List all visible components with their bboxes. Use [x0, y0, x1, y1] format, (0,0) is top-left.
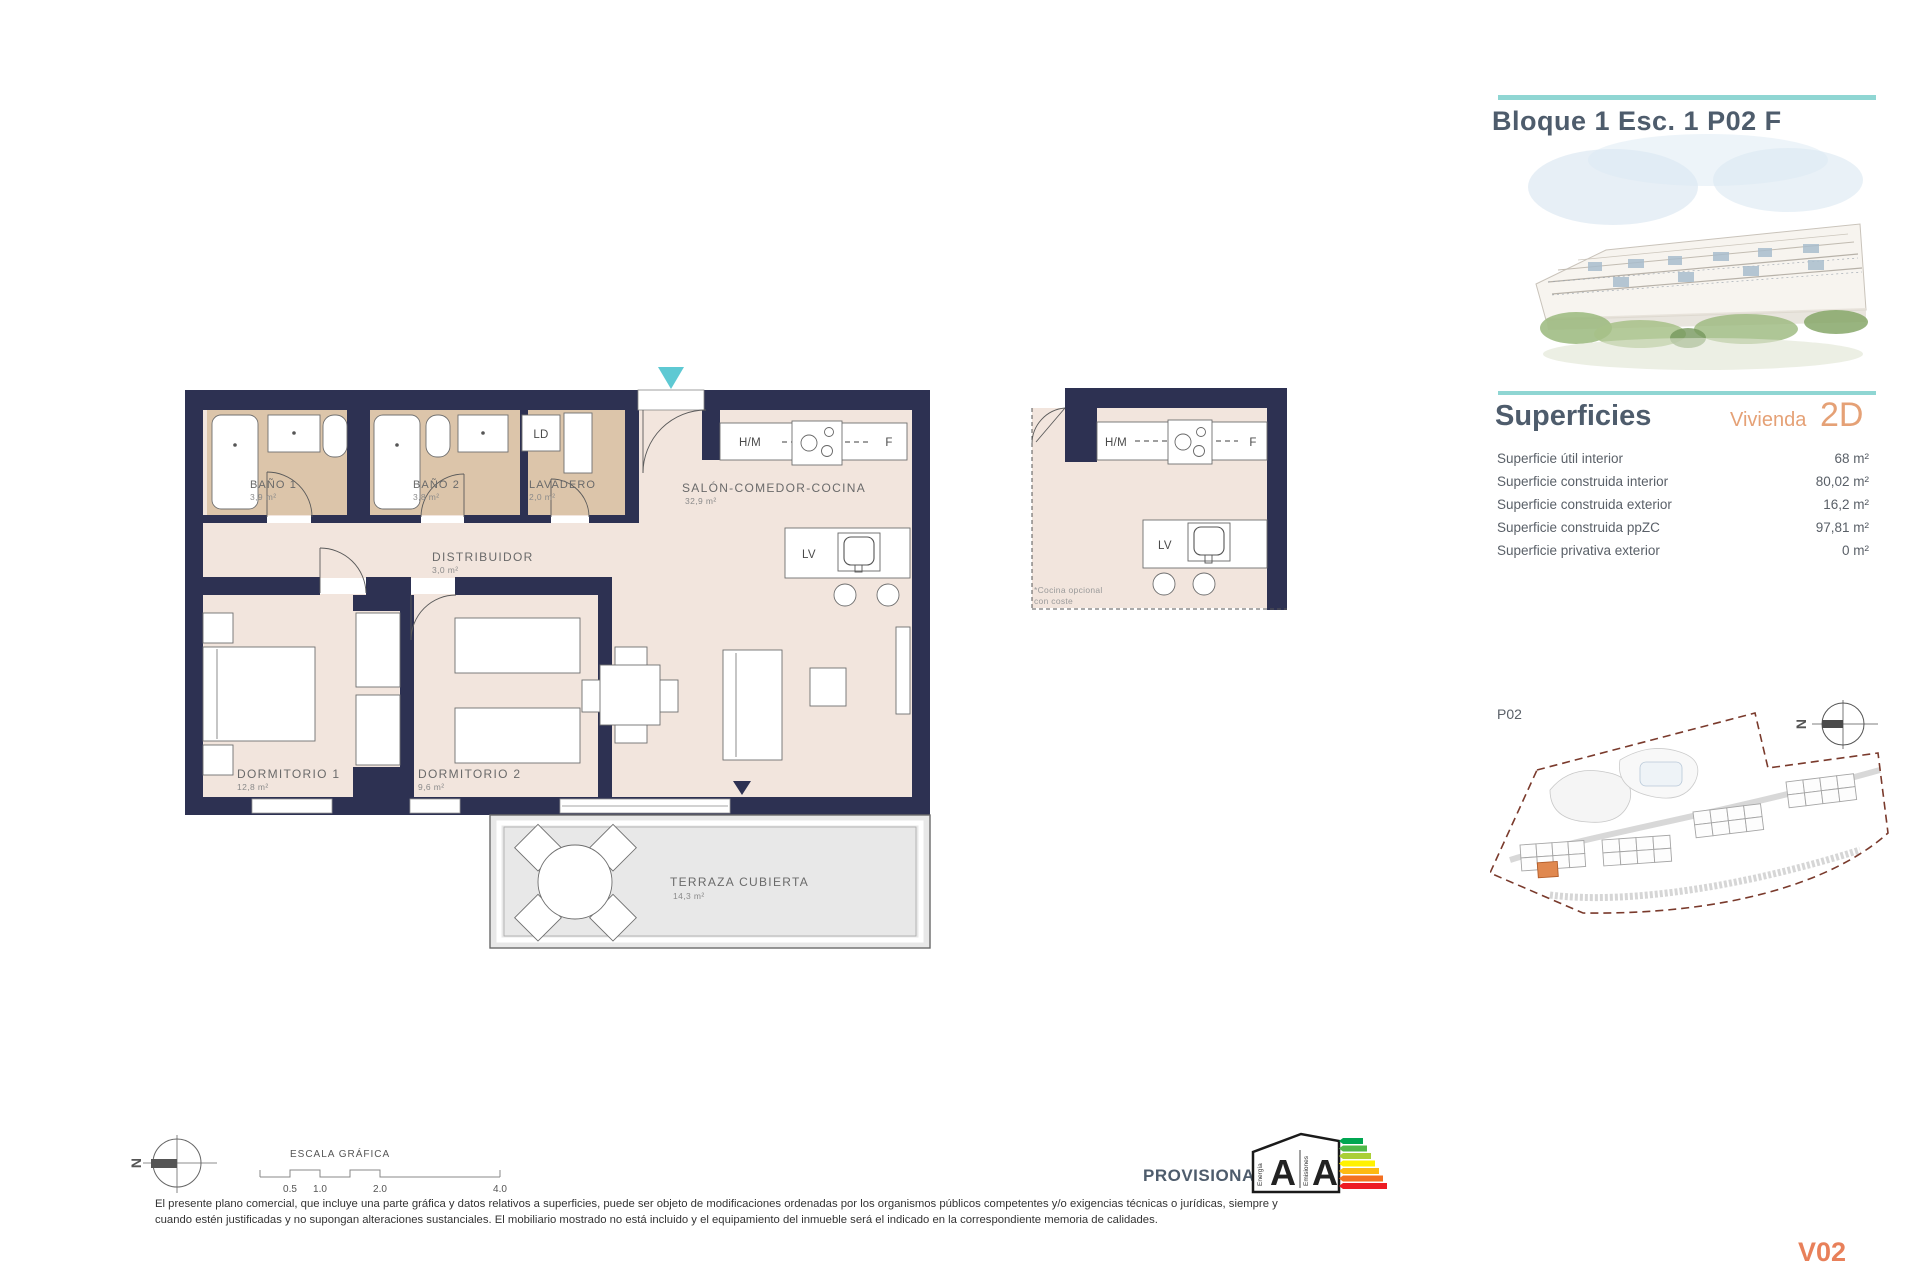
- building-cluster: [1520, 841, 1586, 879]
- superficies-row: Superficie privativa exterior 0 m²: [1497, 539, 1869, 562]
- bed-icon: [203, 647, 315, 741]
- svg-text:A: A: [1312, 1152, 1338, 1193]
- room-label: TERRAZA CUBIERTA: [670, 875, 809, 889]
- hm-label: H/M: [739, 437, 761, 449]
- surface-label: Superficie privativa exterior: [1497, 543, 1660, 558]
- building-illustration: [1518, 132, 1886, 382]
- svg-text:3,0 m²: 3,0 m²: [432, 565, 459, 575]
- entrance-arrow-icon: [658, 367, 684, 389]
- vivienda-type-code: 2D: [1820, 396, 1863, 435]
- chair-icon: [658, 680, 678, 712]
- svg-text:F: F: [1249, 437, 1256, 449]
- svg-text:2,0 m²: 2,0 m²: [529, 492, 556, 502]
- stool-icon: [1153, 573, 1175, 595]
- entrance-door: [638, 390, 704, 410]
- svg-text:LV: LV: [1158, 540, 1172, 552]
- kitchen-note: *Cocina opcional: [1034, 585, 1103, 595]
- nightstand-icon: [203, 745, 233, 775]
- svg-text:N: N: [1793, 719, 1809, 729]
- surface-value: 68 m²: [1834, 451, 1869, 466]
- wardrobe-icon: [356, 613, 400, 687]
- svg-text:Emisiones: Emisiones: [1303, 1155, 1310, 1186]
- alt-kitchen-plan: H/M F LV *Cocina opcional con coste: [1020, 380, 1310, 625]
- chair-icon: [615, 647, 647, 667]
- wardrobe-icon: [356, 695, 400, 765]
- room-label: BAÑO 2: [413, 478, 460, 491]
- dining-table-icon: [600, 665, 660, 725]
- surface-value: 80,02 m²: [1816, 474, 1869, 489]
- building-cluster: [1786, 774, 1857, 808]
- building-cluster: [1693, 804, 1764, 838]
- sofa-icon: [723, 650, 782, 760]
- appliance-icon: [564, 413, 592, 473]
- disclaimer-line: El presente plano comercial, que incluye…: [155, 1196, 1435, 1212]
- svg-text:N: N: [128, 1158, 144, 1168]
- room-label: BAÑO 1: [250, 478, 297, 491]
- version-label: V02: [1798, 1237, 1846, 1268]
- svg-text:32,9 m²: 32,9 m²: [685, 496, 717, 506]
- bed-icon: [455, 618, 580, 673]
- bed-icon: [455, 708, 580, 763]
- toilet-icon: [323, 415, 347, 457]
- highlighted-unit: [1537, 861, 1558, 877]
- svg-text:A: A: [1270, 1152, 1296, 1193]
- stool-icon: [834, 584, 856, 606]
- side-table-icon: [810, 668, 846, 706]
- svg-text:9,6 m²: 9,6 m²: [418, 782, 445, 792]
- room-label: DORMITORIO 2: [418, 767, 521, 781]
- building-cluster: [1602, 835, 1672, 866]
- surface-value: 16,2 m²: [1823, 497, 1869, 512]
- vivienda-label: Vivienda: [1730, 409, 1806, 432]
- svg-text:2.0: 2.0: [373, 1184, 387, 1195]
- energy-scale-bars: [1339, 1138, 1387, 1189]
- svg-text:4.0: 4.0: [493, 1184, 507, 1195]
- chair-icon: [582, 680, 602, 712]
- svg-text:1.0: 1.0: [313, 1184, 327, 1195]
- scale-title: ESCALA GRÁFICA: [290, 1147, 390, 1160]
- superficies-table: Superficie útil interior 68 m² Superfici…: [1497, 447, 1869, 562]
- title-rule: [1498, 95, 1876, 100]
- surface-label: Superficie construida exterior: [1497, 497, 1672, 512]
- room-label: DISTRIBUIDOR: [432, 550, 534, 564]
- nightstand-icon: [203, 613, 233, 643]
- superficies-row: Superficie construida exterior 16,2 m²: [1497, 493, 1869, 516]
- ld-label: LD: [533, 429, 548, 441]
- fridge-label: F: [885, 437, 892, 449]
- site-boundary: [1490, 713, 1888, 913]
- sink-icon: [1194, 527, 1224, 555]
- svg-text:3,9 m²: 3,9 m²: [250, 492, 277, 502]
- energy-rating-icon: Energía A Emisiones A: [1245, 1128, 1395, 1198]
- main-floor-plan: LD H/M F LV: [170, 355, 960, 970]
- svg-text:H/M: H/M: [1105, 437, 1127, 449]
- surface-label: Superficie construida interior: [1497, 474, 1668, 489]
- svg-text:12,8 m²: 12,8 m²: [237, 782, 269, 792]
- svg-text:14,3 m²: 14,3 m²: [673, 891, 705, 901]
- stool-icon: [877, 584, 899, 606]
- chair-icon: [615, 723, 647, 743]
- scale-bar: ESCALA GRÁFICA 0.5 1.0 2.0 4.0: [250, 1143, 530, 1203]
- site-plan: N: [1490, 700, 1920, 940]
- surface-value: 97,81 m²: [1816, 520, 1869, 535]
- superficies-row: Superficie construida interior 80,02 m²: [1497, 470, 1869, 493]
- superficies-rule: [1498, 391, 1876, 395]
- room-label: DORMITORIO 1: [237, 767, 340, 781]
- svg-text:3,8 m²: 3,8 m²: [413, 492, 440, 502]
- superficies-row: Superficie construida ppZC 97,81 m²: [1497, 516, 1869, 539]
- plan-sheet: LD H/M F LV: [0, 0, 1920, 1280]
- superficies-row: Superficie útil interior 68 m²: [1497, 447, 1869, 470]
- room-label: SALÓN-COMEDOR-COCINA: [682, 480, 866, 495]
- svg-text:Energía: Energía: [1257, 1163, 1264, 1186]
- tv-unit-icon: [896, 627, 910, 714]
- north-compass-icon: N: [1793, 700, 1878, 749]
- svg-text:0.5: 0.5: [283, 1184, 297, 1195]
- sink-icon: [844, 537, 874, 565]
- lv-label: LV: [802, 549, 816, 561]
- room-label: LAVADERO: [529, 479, 596, 491]
- stool-icon: [1193, 573, 1215, 595]
- superficies-title: Superficies: [1495, 400, 1651, 433]
- disclaimer-line: cuando estén justificadas y no supongan …: [155, 1212, 1435, 1228]
- surface-label: Superficie construida ppZC: [1497, 520, 1660, 535]
- surface-value: 0 m²: [1842, 543, 1869, 558]
- surface-label: Superficie útil interior: [1497, 451, 1623, 466]
- svg-text:con coste: con coste: [1034, 596, 1073, 606]
- legal-disclaimer: El presente plano comercial, que incluye…: [155, 1196, 1435, 1228]
- toilet-icon: [426, 415, 450, 457]
